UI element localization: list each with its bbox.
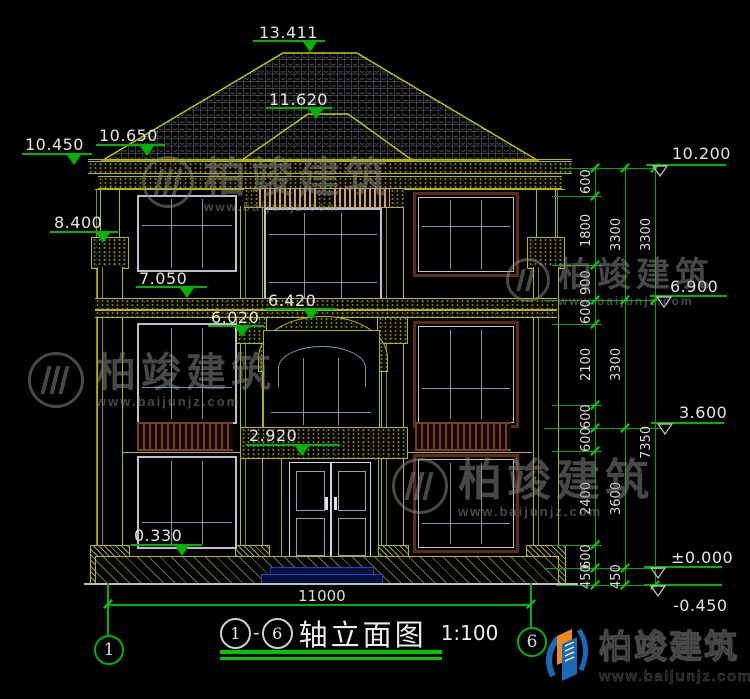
door-handle (334, 497, 337, 510)
elevation-label-eave-right: 10.200 (672, 144, 731, 163)
mullion (450, 330, 451, 419)
level-triangle-icon (650, 567, 666, 579)
dim-chain-outer (655, 168, 656, 585)
dim-value: 7350 (639, 300, 654, 585)
level-triangle-icon (302, 41, 318, 53)
level-triangle-icon (652, 165, 668, 177)
sill-line-right (406, 452, 532, 453)
dim-value: 600 (579, 168, 594, 196)
elevation-drawing: 13.411 11.620 10.650 10.450 8.400 7.050 … (0, 0, 750, 699)
window-3f-center (264, 208, 382, 304)
level-triangle-icon (308, 108, 324, 120)
door-handle (325, 497, 328, 510)
mullion (142, 387, 232, 388)
dim-value: 450 (579, 568, 594, 585)
level-triangle-icon (66, 154, 82, 166)
door-leaf-left (289, 462, 331, 565)
mullion (422, 226, 510, 227)
window-2f-left (137, 323, 237, 424)
level-triangle-icon (294, 445, 310, 457)
balustrade-post (390, 188, 404, 208)
mullion (202, 199, 203, 268)
mullion (142, 225, 232, 226)
title-scale: 1:100 (441, 621, 499, 645)
eave-cornice-band (88, 161, 572, 174)
title-dash: - (253, 622, 260, 645)
eave-fascia-line (88, 159, 572, 160)
mullion (338, 358, 339, 425)
window-sash (418, 326, 514, 423)
elevation-label-eave-left: 10.450 (25, 135, 84, 154)
mullion (422, 388, 510, 389)
brand-logo-url: www.baijunjz.com (599, 668, 750, 685)
dim-chain-inner (595, 168, 596, 585)
mullion (450, 200, 451, 269)
dim-value: 2100 (579, 324, 594, 405)
window-sash (418, 197, 514, 272)
window-1f-right (413, 454, 519, 553)
door-panel (296, 518, 325, 556)
mullion (481, 200, 482, 269)
dim-value: 900 (579, 265, 594, 300)
spandrel-slats-right (415, 422, 511, 451)
dim-value: 450 (609, 568, 624, 585)
roof-tiles (85, 45, 577, 165)
level-triangle-icon (95, 232, 111, 244)
balustrade-post (317, 188, 331, 208)
overall-width-value: 11000 (298, 587, 346, 605)
title-underline-2 (220, 657, 442, 660)
elevation-label-floor2-right: 3.600 (679, 403, 727, 422)
axis-stem-left (107, 583, 109, 635)
level-triangle-icon (179, 287, 195, 299)
mullion (304, 213, 305, 300)
mullion (341, 213, 342, 300)
elevation-label-ridge: 13.411 (259, 23, 318, 42)
axis-bubble-1: 1 (94, 635, 124, 665)
mullion (202, 461, 203, 545)
level-triangle-icon (656, 296, 672, 308)
mullion (171, 199, 172, 268)
dim-value: 3600 (609, 428, 624, 568)
mullion (481, 330, 482, 419)
elevation-label-floor3-sill: 7.050 (139, 269, 187, 288)
ground-line (84, 583, 578, 585)
elevation-label-porch-ridge: 11.620 (269, 90, 328, 109)
title-underline (220, 650, 442, 654)
elevation-line (131, 544, 202, 546)
level-triangle-icon (303, 309, 319, 321)
level-triangle-icon (234, 326, 250, 338)
balustrade-post (244, 188, 258, 208)
window-2f-center (268, 352, 374, 427)
dim-value: 1800 (579, 196, 594, 265)
drawing-title: 1 - 6 轴立面图 1:100 (220, 612, 498, 654)
mullion (271, 412, 371, 413)
mullion (269, 282, 376, 283)
pilaster-upper-left (100, 190, 120, 237)
dim-value: 600 (579, 300, 594, 324)
door-panel (338, 518, 366, 556)
title-text: 轴立面图 (299, 612, 427, 654)
dim-value: 3300 (609, 168, 624, 300)
mullion (450, 463, 451, 545)
pilaster-upper-right (536, 190, 556, 237)
watermark-logo-icon (28, 352, 84, 408)
elevation-label-canopy: 2.920 (249, 426, 297, 445)
mullion (142, 522, 232, 523)
mullion (303, 358, 304, 425)
elevation-label-floor1-sill: 0.330 (134, 526, 182, 545)
mullion (202, 328, 203, 419)
center-pilaster-shaft-right (381, 206, 404, 545)
dim-value: 2400 (579, 451, 594, 545)
level-triangle-icon (650, 585, 666, 597)
mullion (422, 523, 510, 524)
window-sash (418, 459, 514, 548)
level-triangle-icon (657, 423, 673, 435)
brand-logo-text: 柏竣建筑 (599, 620, 750, 668)
elevation-line (246, 444, 340, 446)
level-triangle-icon (139, 145, 155, 157)
dim-value: 3300 (639, 168, 654, 300)
window-3f-right (413, 192, 519, 277)
title-axis-to: 6 (262, 618, 293, 649)
mullion (481, 463, 482, 545)
door-panel (338, 471, 366, 511)
sill-line-left (122, 452, 240, 453)
level-triangle-icon (174, 545, 190, 557)
door-panel (296, 471, 325, 511)
window-2f-right (413, 321, 519, 428)
dim-chain-mid (625, 168, 626, 585)
center-pilaster-shaft-left (240, 206, 263, 545)
brand-logo-icon (543, 622, 591, 684)
mullion (171, 328, 172, 419)
elevation-label-ground: ±0.000 (671, 548, 733, 567)
elevation-label-floor3-right: 6.900 (670, 277, 718, 296)
elevation-label-pilaster-top: 8.400 (54, 213, 102, 232)
elevation-line (265, 308, 335, 310)
dim-value: 600 (579, 405, 594, 428)
elevation-label-eave-upper: 10.650 (99, 126, 158, 145)
window-3f-left (137, 195, 237, 272)
dim-value: 600 (579, 428, 594, 451)
brand-logo: 柏竣建筑 www.baijunjz.com (543, 620, 750, 685)
elevation-label-base: -0.450 (673, 596, 728, 615)
mullion (269, 234, 376, 235)
spandrel-slats-left (137, 422, 233, 451)
title-axis-from: 1 (220, 618, 251, 649)
door-leaf-right (331, 462, 371, 565)
dim-value: 3300 (609, 300, 624, 428)
